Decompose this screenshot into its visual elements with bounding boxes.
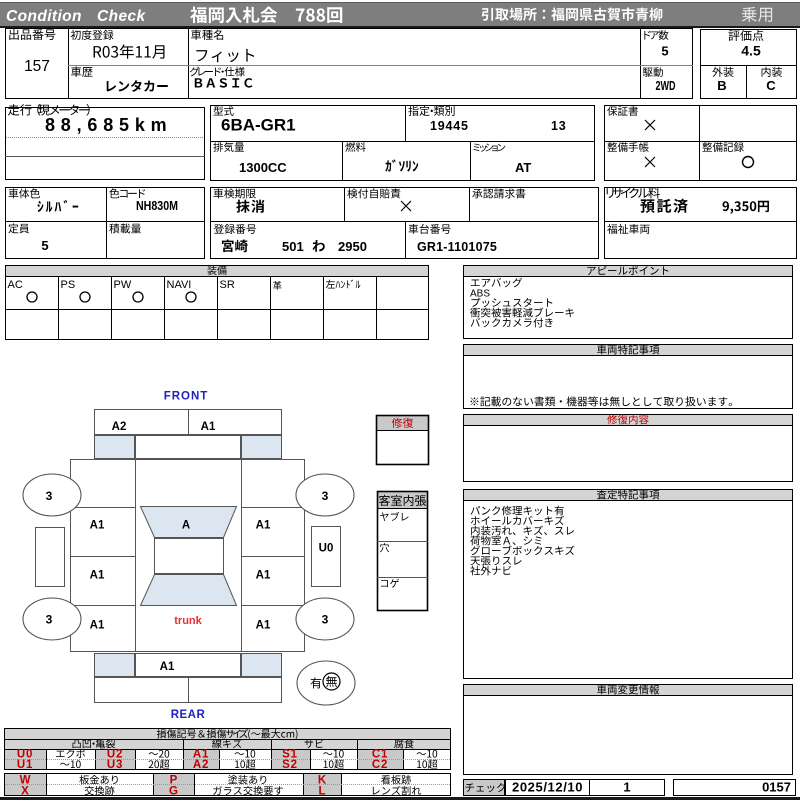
svg-text:A1: A1 bbox=[90, 520, 105, 532]
svg-text:Check: Check bbox=[97, 8, 147, 25]
svg-text:A1: A1 bbox=[160, 661, 175, 673]
svg-text:NAVI: NAVI bbox=[167, 279, 192, 291]
svg-text:FRONT: FRONT bbox=[164, 391, 209, 403]
svg-text:PW: PW bbox=[114, 279, 132, 291]
svg-text:5: 5 bbox=[661, 44, 668, 59]
svg-text:C: C bbox=[766, 78, 776, 93]
svg-text:3: 3 bbox=[46, 613, 53, 627]
svg-text:A1: A1 bbox=[90, 620, 105, 632]
svg-text:0157: 0157 bbox=[762, 780, 791, 795]
svg-text:1: 1 bbox=[623, 780, 630, 795]
svg-text:U1: U1 bbox=[17, 759, 33, 771]
svg-text:2WD: 2WD bbox=[656, 78, 676, 93]
svg-text:4.5: 4.5 bbox=[741, 43, 761, 59]
svg-text:U3: U3 bbox=[107, 759, 123, 771]
svg-text:A1: A1 bbox=[256, 520, 271, 532]
svg-text:88,685km: 88,685km bbox=[45, 115, 172, 135]
svg-text:1300CC: 1300CC bbox=[239, 160, 287, 175]
svg-text:19445: 19445 bbox=[430, 119, 469, 133]
svg-text:PS: PS bbox=[61, 279, 76, 291]
svg-text:13: 13 bbox=[551, 119, 567, 133]
svg-text:5: 5 bbox=[41, 238, 48, 253]
svg-text:A2: A2 bbox=[112, 421, 127, 433]
svg-text:A1: A1 bbox=[90, 570, 105, 582]
svg-text:A: A bbox=[182, 520, 190, 532]
svg-text:AT: AT bbox=[515, 160, 531, 175]
svg-text:ABS: ABS bbox=[470, 289, 490, 300]
svg-text:6BA-GR1: 6BA-GR1 bbox=[221, 116, 296, 135]
svg-text:A1: A1 bbox=[256, 620, 271, 632]
svg-text:3: 3 bbox=[46, 489, 53, 503]
svg-text:G: G bbox=[169, 786, 178, 798]
svg-text:GR1-1101075: GR1-1101075 bbox=[417, 240, 497, 254]
svg-text:A2: A2 bbox=[193, 759, 209, 771]
svg-text:C2: C2 bbox=[372, 759, 388, 771]
svg-text:Condition: Condition bbox=[6, 8, 82, 25]
svg-text:U0: U0 bbox=[319, 543, 334, 555]
svg-text:2025/12/10: 2025/12/10 bbox=[512, 780, 583, 795]
svg-text:AC: AC bbox=[8, 279, 23, 291]
svg-text:NH830M: NH830M bbox=[136, 199, 178, 213]
svg-text:L: L bbox=[318, 786, 325, 798]
svg-text:SR: SR bbox=[220, 279, 235, 291]
svg-text:trunk: trunk bbox=[174, 615, 202, 627]
svg-text:A1: A1 bbox=[201, 421, 216, 433]
svg-text:3: 3 bbox=[322, 489, 329, 503]
svg-text:2950: 2950 bbox=[338, 239, 367, 254]
svg-text:157: 157 bbox=[24, 58, 50, 75]
svg-text:X: X bbox=[21, 786, 29, 798]
svg-text:REAR: REAR bbox=[171, 709, 206, 721]
svg-text:B: B bbox=[717, 78, 726, 93]
svg-text:501: 501 bbox=[282, 239, 304, 254]
svg-text:A1: A1 bbox=[256, 570, 271, 582]
svg-text:3: 3 bbox=[322, 613, 329, 627]
svg-text:S2: S2 bbox=[282, 759, 298, 771]
